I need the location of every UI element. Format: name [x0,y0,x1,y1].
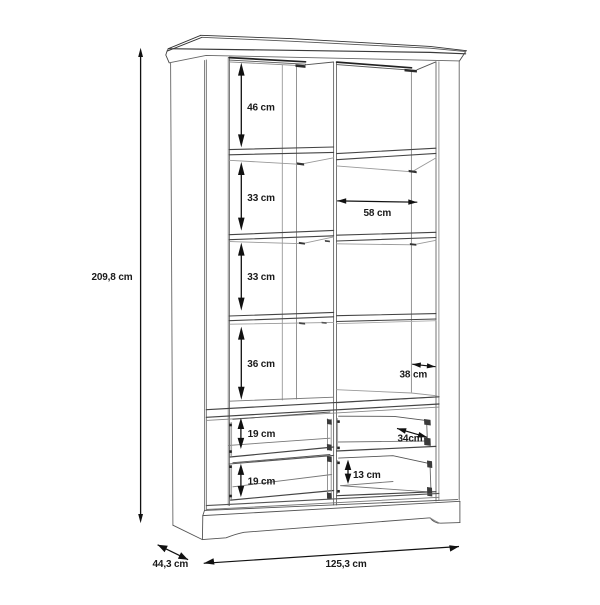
svg-text:13 cm: 13 cm [353,470,381,481]
svg-text:44,3 cm: 44,3 cm [153,559,189,570]
svg-text:19 cm: 19 cm [248,429,276,440]
svg-text:34cm: 34cm [398,433,423,444]
svg-text:33 cm: 33 cm [247,272,275,283]
svg-text:125,3 cm: 125,3 cm [326,559,367,570]
svg-text:58 cm: 58 cm [364,208,392,219]
svg-text:38 cm: 38 cm [400,369,428,380]
svg-text:46 cm: 46 cm [247,102,275,113]
svg-text:33 cm: 33 cm [247,193,275,204]
svg-text:19 cm: 19 cm [248,476,276,487]
svg-text:209,8 cm: 209,8 cm [91,272,132,283]
svg-text:36 cm: 36 cm [247,359,275,370]
